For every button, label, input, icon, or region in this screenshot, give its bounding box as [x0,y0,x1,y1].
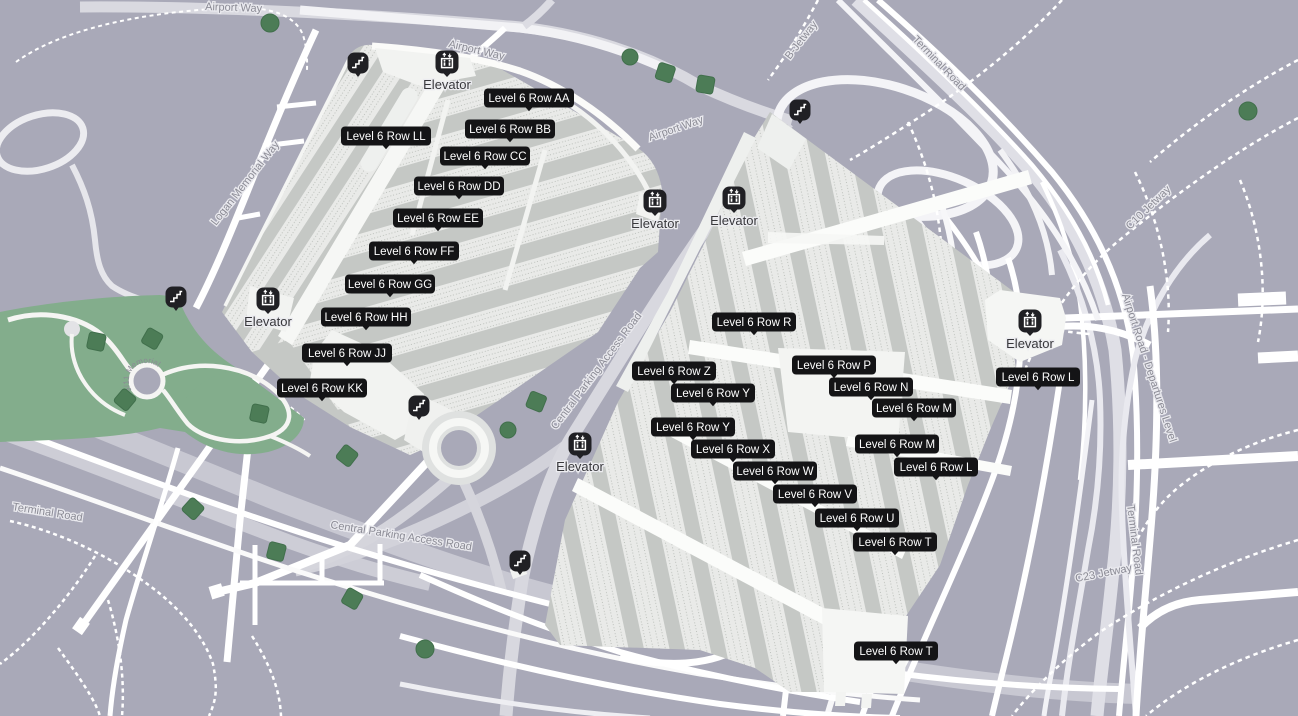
svg-text:Level 6 Row N: Level 6 Row N [834,382,909,394]
svg-text:Level 6 Row M: Level 6 Row M [876,403,952,415]
svg-text:Level 6 Row AA: Level 6 Row AA [488,93,570,105]
svg-text:Level 6 Row CC: Level 6 Row CC [443,151,526,163]
svg-text:Level 6 Row M: Level 6 Row M [859,439,935,451]
svg-text:Level 6 Row GG: Level 6 Row GG [348,279,432,291]
svg-text:Level 6 Row T: Level 6 Row T [858,537,931,549]
svg-text:Level 6 Row BB: Level 6 Row BB [469,124,551,136]
svg-text:Level 6 Row Z: Level 6 Row Z [637,366,711,378]
svg-text:Level 6 Row V: Level 6 Row V [778,489,852,501]
svg-text:Level 6 Row P: Level 6 Row P [797,360,871,372]
svg-text:Level 6 Row LL: Level 6 Row LL [346,131,426,143]
svg-text:Level 6 Row KK: Level 6 Row KK [281,383,363,395]
svg-text:Airport Way: Airport Way [205,1,263,15]
svg-text:Level 6 Row L: Level 6 Row L [900,462,973,474]
svg-text:Level 6 Row Y: Level 6 Row Y [676,388,750,400]
svg-text:Elevator: Elevator [423,77,471,92]
svg-text:Elevator: Elevator [710,213,758,228]
svg-text:Elevator: Elevator [556,459,604,474]
svg-text:Level 6 Row FF: Level 6 Row FF [374,246,455,258]
svg-text:Elevator: Elevator [244,314,292,329]
svg-text:Elevator: Elevator [631,216,679,231]
svg-text:Level 6 Row U: Level 6 Row U [820,513,895,525]
svg-text:Level 6 Row DD: Level 6 Row DD [417,181,500,193]
svg-text:Level 6 Row Y: Level 6 Row Y [656,422,730,434]
svg-text:Level 6 Row T: Level 6 Row T [859,646,932,658]
svg-text:Level 6 Row X: Level 6 Row X [696,444,770,456]
svg-text:Elevator: Elevator [1006,336,1054,351]
svg-text:Level 6 Row HH: Level 6 Row HH [324,312,407,324]
svg-text:Level 6 Row EE: Level 6 Row EE [397,213,479,225]
svg-text:Level 6 Row JJ: Level 6 Row JJ [308,348,386,360]
svg-text:Level 6 Row W: Level 6 Row W [736,466,813,478]
svg-text:Level 6 Row R: Level 6 Row R [717,317,792,329]
svg-text:Level 6 Row L: Level 6 Row L [1002,372,1075,384]
